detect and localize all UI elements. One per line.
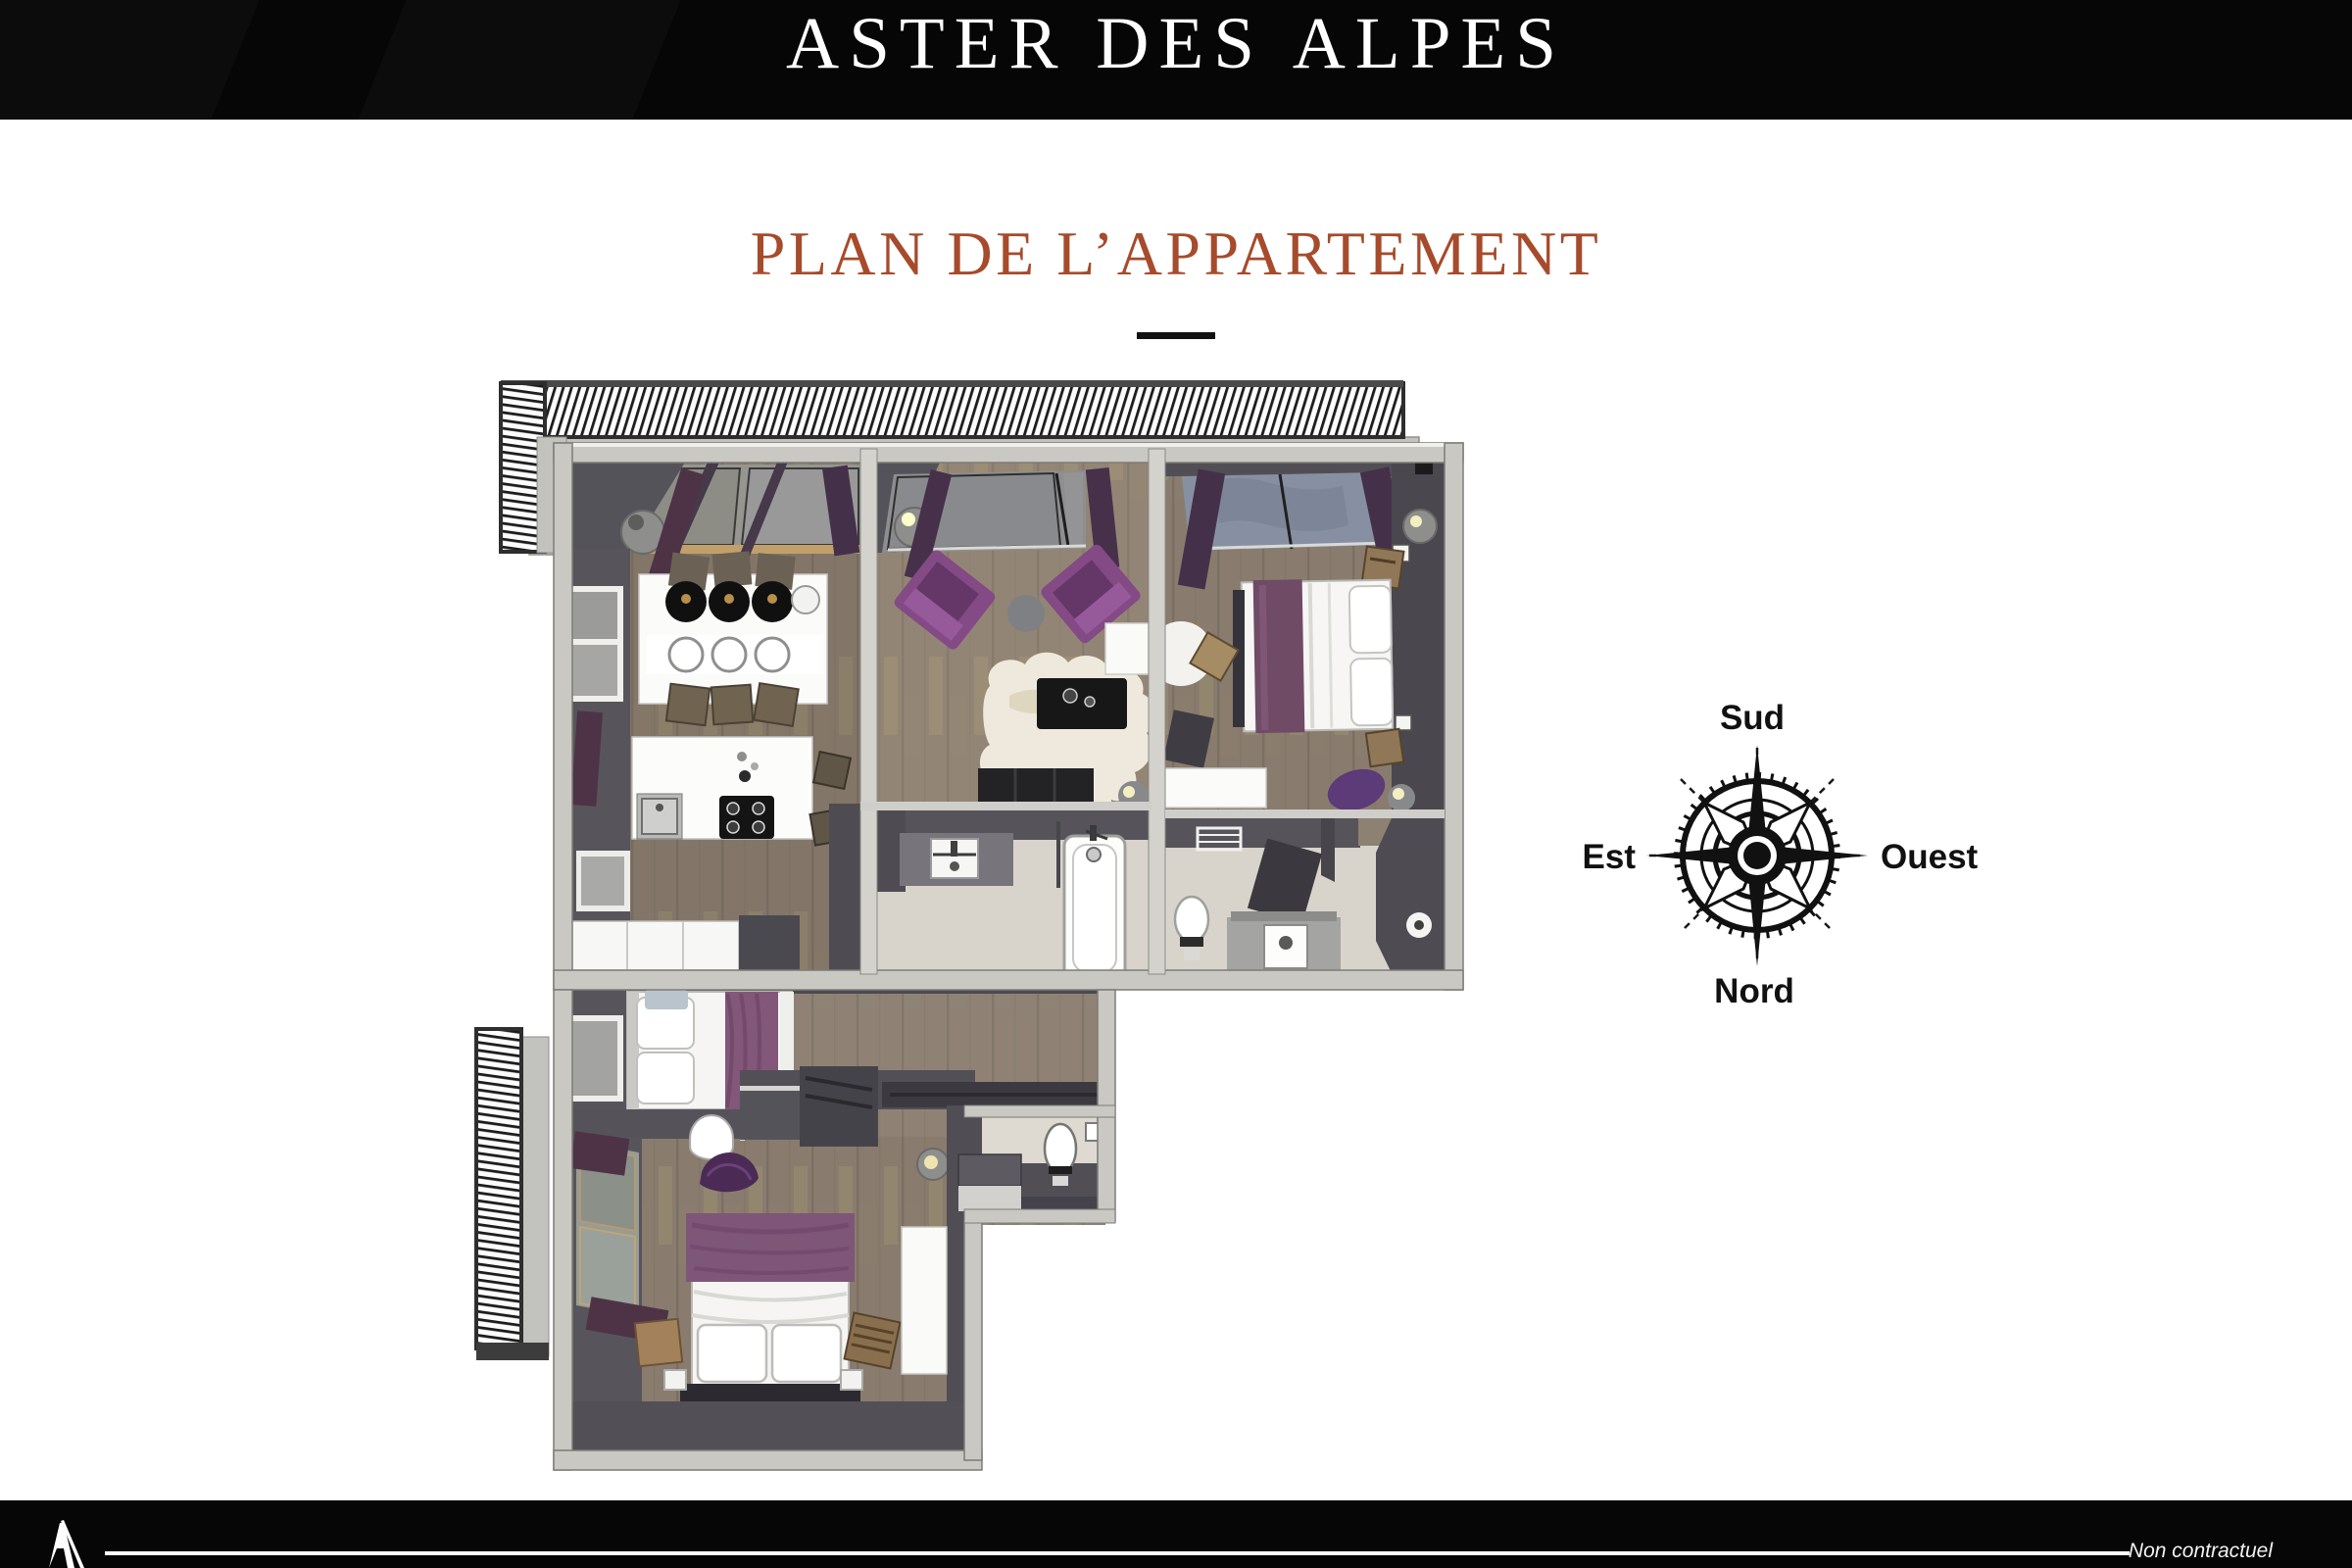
svg-text:Nord: Nord [1714,972,1794,1010]
svg-text:Ouest: Ouest [1881,838,1979,876]
svg-text:Est: Est [1583,838,1637,876]
svg-text:Sud: Sud [1720,699,1785,737]
